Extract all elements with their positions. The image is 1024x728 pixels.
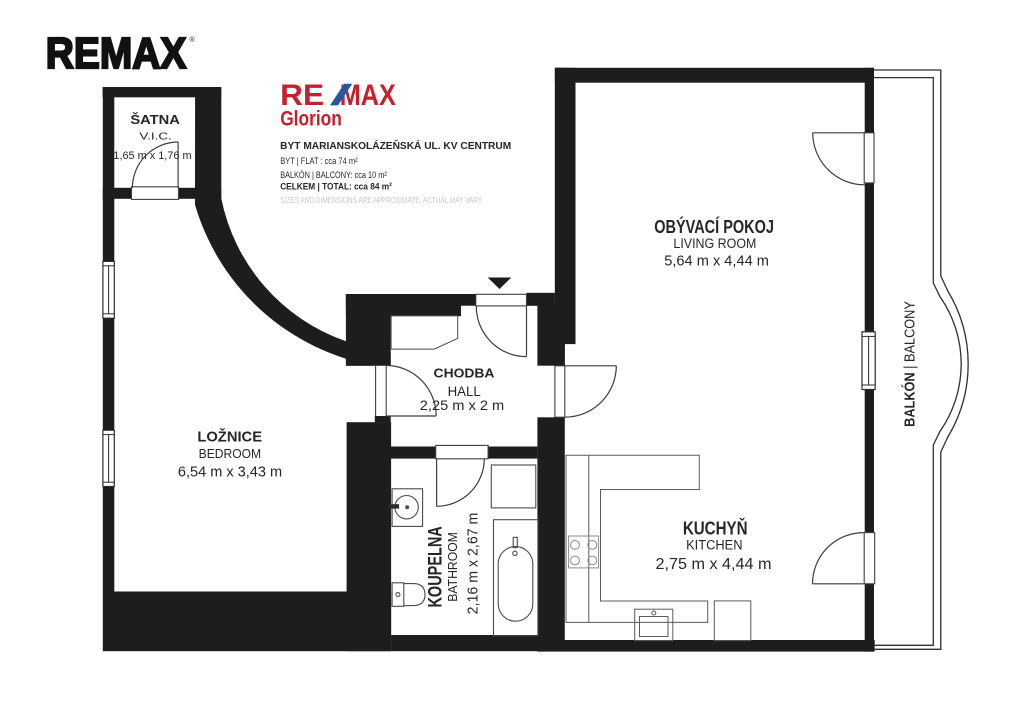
- svg-text:2,25 m x 2 m: 2,25 m x 2 m: [420, 397, 504, 413]
- svg-text:KUCHYŇ: KUCHYŇ: [683, 518, 748, 539]
- svg-text:LOŽNICE: LOŽNICE: [197, 428, 262, 446]
- svg-text:CHODBA: CHODBA: [434, 365, 496, 380]
- svg-text:BATHROOM: BATHROOM: [445, 532, 460, 602]
- svg-text:OBÝVACÍ POKOJ: OBÝVACÍ POKOJ: [654, 216, 774, 237]
- svg-text:1,65 m x 1,76 m: 1,65 m x 1,76 m: [113, 150, 191, 162]
- svg-text:BALKÓN | BALCONY: BALKÓN | BALCONY: [901, 301, 919, 427]
- svg-text:ŠATNA: ŠATNA: [130, 112, 180, 127]
- svg-text:Glorion: Glorion: [280, 108, 342, 131]
- svg-text:5,64 m x 4,44 m: 5,64 m x 4,44 m: [664, 253, 769, 269]
- svg-text:REMAX: REMAX: [46, 29, 187, 78]
- svg-text:SIZES AND DIMENSIONS ARE APPRO: SIZES AND DIMENSIONS ARE APPROXIMATE, AC…: [280, 195, 483, 205]
- svg-text:V.I.C.: V.I.C.: [139, 131, 171, 142]
- svg-text:KOUPELNA: KOUPELNA: [426, 526, 447, 608]
- svg-text:®: ®: [190, 36, 196, 44]
- svg-text:6,54 m x 3,43 m: 6,54 m x 3,43 m: [178, 464, 282, 480]
- svg-text:BEDROOM: BEDROOM: [199, 446, 262, 461]
- svg-text:2,75 m x 4,44 m: 2,75 m x 4,44 m: [656, 556, 772, 573]
- svg-text:BYT | FLAT : cca 74 m²: BYT | FLAT : cca 74 m²: [280, 156, 357, 166]
- svg-text:LIVING ROOM: LIVING ROOM: [673, 236, 756, 251]
- svg-text:2,16 m x 2,67 m: 2,16 m x 2,67 m: [464, 513, 481, 615]
- svg-text:BYT MARIANSKOLÁZEŇSKÁ UL. KV C: BYT MARIANSKOLÁZEŇSKÁ UL. KV CENTRUM: [280, 140, 511, 152]
- svg-text:BALKÓN | BALCONY: cca 10 m²: BALKÓN | BALCONY: cca 10 m²: [280, 170, 387, 180]
- svg-text:KITCHEN: KITCHEN: [686, 537, 742, 552]
- svg-text:CELKEM | TOTAL: cca 84 m²: CELKEM | TOTAL: cca 84 m²: [280, 182, 392, 193]
